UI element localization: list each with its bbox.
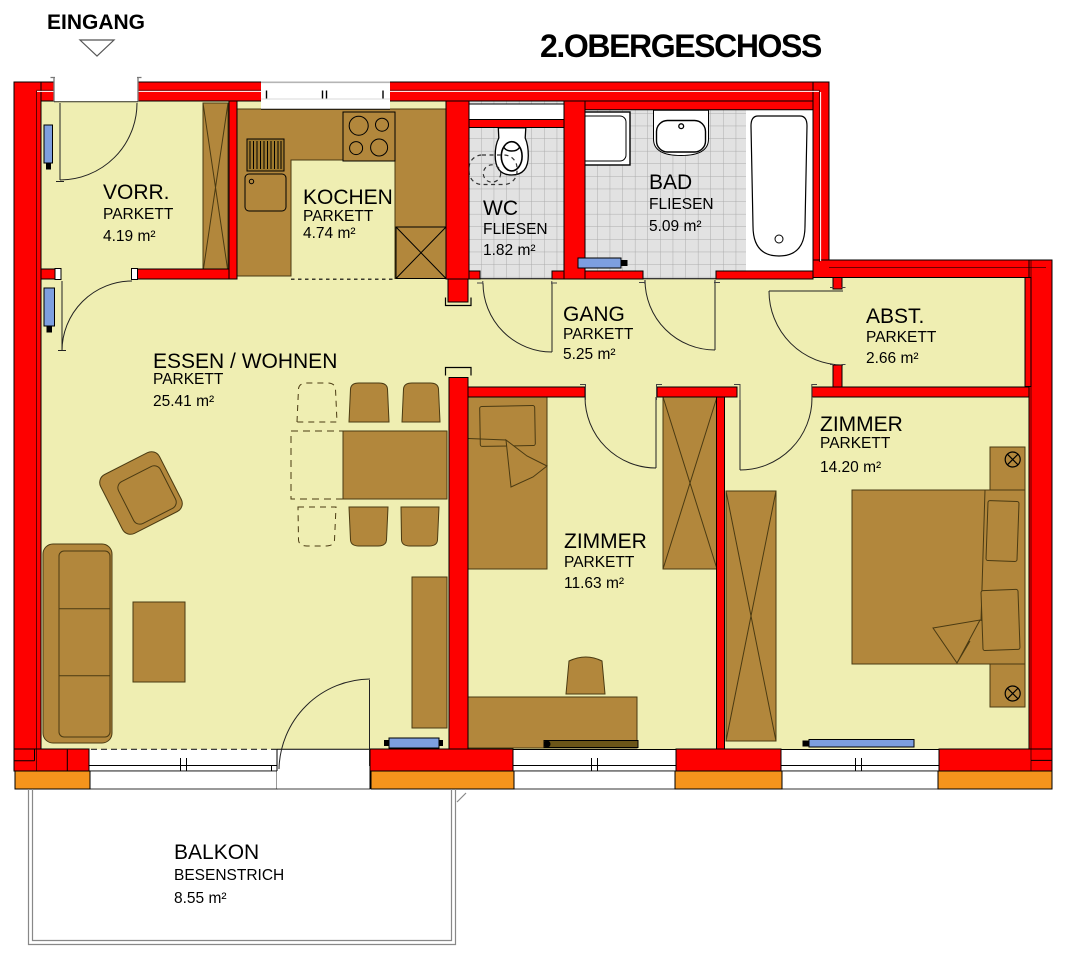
svg-text:PARKETT: PARKETT	[303, 208, 374, 225]
svg-text:PARKETT: PARKETT	[563, 326, 634, 343]
svg-text:2.OBERGESCHOSS: 2.OBERGESCHOSS	[540, 28, 822, 64]
svg-text:1.82 m²: 1.82 m²	[483, 242, 536, 259]
svg-text:5.09 m²: 5.09 m²	[649, 218, 702, 235]
svg-text:KOCHEN: KOCHEN	[303, 186, 393, 209]
svg-text:FLIESEN: FLIESEN	[649, 196, 714, 213]
svg-text:GANG: GANG	[563, 303, 625, 326]
svg-text:BESENSTRICH: BESENSTRICH	[174, 867, 284, 884]
svg-text:14.20 m²: 14.20 m²	[820, 459, 881, 476]
svg-text:WC: WC	[483, 197, 518, 220]
svg-text:8.55 m²: 8.55 m²	[174, 890, 227, 907]
svg-text:BAD: BAD	[649, 171, 692, 194]
svg-text:FLIESEN: FLIESEN	[483, 221, 548, 238]
svg-text:4.19 m²: 4.19 m²	[103, 228, 156, 245]
svg-text:EINGANG: EINGANG	[47, 11, 145, 34]
svg-text:BALKON: BALKON	[174, 841, 259, 864]
svg-text:ZIMMER: ZIMMER	[564, 530, 647, 553]
svg-text:ESSEN / WOHNEN: ESSEN / WOHNEN	[153, 350, 337, 373]
svg-text:25.41 m²: 25.41 m²	[153, 393, 214, 410]
svg-text:VORR.: VORR.	[103, 181, 170, 204]
svg-text:5.25 m²: 5.25 m²	[563, 346, 616, 363]
svg-text:PARKETT: PARKETT	[103, 206, 174, 223]
svg-text:PARKETT: PARKETT	[153, 371, 224, 388]
svg-text:PARKETT: PARKETT	[866, 329, 937, 346]
svg-text:4.74 m²: 4.74 m²	[303, 225, 356, 242]
svg-text:11.63 m²: 11.63 m²	[564, 575, 624, 592]
svg-text:ZIMMER: ZIMMER	[820, 413, 903, 436]
svg-text:PARKETT: PARKETT	[820, 435, 891, 452]
svg-text:ABST.: ABST.	[866, 305, 924, 328]
svg-text:PARKETT: PARKETT	[564, 554, 635, 571]
svg-text:2.66 m²: 2.66 m²	[866, 350, 919, 367]
